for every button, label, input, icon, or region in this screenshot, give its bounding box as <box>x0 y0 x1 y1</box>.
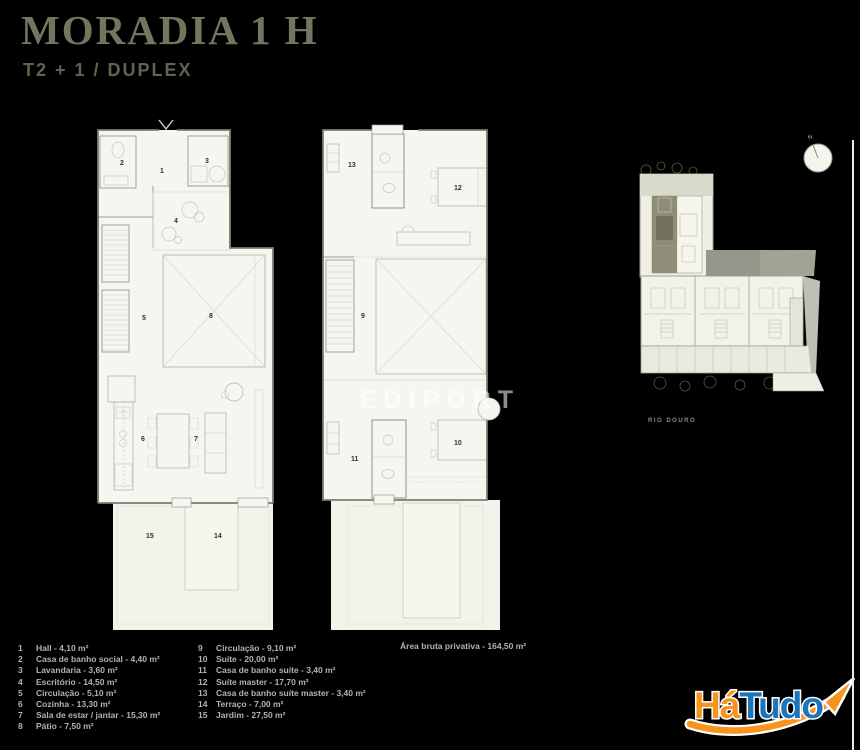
room-number-escritorio: 4 <box>174 218 178 225</box>
room-number-suite: 10 <box>454 440 462 447</box>
room-number-circulacao1: 9 <box>361 313 365 320</box>
logo-text-tudo: Tudo <box>739 685 823 726</box>
legend-item: 3Lavandaria - 3,60 m² <box>18 665 160 676</box>
legend-item: 8Pátio - 7,50 m² <box>18 721 160 732</box>
right-edge-line <box>852 140 854 750</box>
door-threshold <box>238 498 268 507</box>
page-title: MORADIA 1 H <box>21 6 319 54</box>
gross-area-total: Área bruta privativa - 164,50 m² <box>400 641 526 651</box>
legend-item: 2Casa de banho social - 4,40 m² <box>18 654 160 665</box>
ground-floor-plan: 1 2 3 4 5 8 6 7 15 14 <box>95 122 280 632</box>
legend-column-1: 1Hall - 4,10 m² 2Casa de banho social - … <box>18 643 160 733</box>
legend-item: 15Jardim - 27,50 m² <box>198 710 366 721</box>
room-number-cozinha: 6 <box>141 436 145 443</box>
site-plan: N <box>630 128 858 433</box>
hatudo-logo: HáTudo <box>684 674 858 748</box>
door-threshold <box>172 498 191 507</box>
room-number-sala: 7 <box>194 436 198 443</box>
room-number-wc-suite-master: 13 <box>348 162 356 169</box>
site-lower-band <box>641 346 811 373</box>
compass-north-label: N <box>807 134 813 141</box>
logo-text-ha: Há <box>694 685 741 726</box>
floor1-interior <box>323 130 487 500</box>
room-number-patio: 8 <box>209 313 213 320</box>
room-number-circulacao0: 5 <box>142 315 146 322</box>
logo-arrowhead <box>824 678 854 714</box>
legend-item: 9Circulação - 9,10 m² <box>198 643 366 654</box>
room-number-hall: 1 <box>160 168 164 175</box>
skylight <box>372 125 403 134</box>
legend-item: 6Cozinha - 13,30 m² <box>18 699 160 710</box>
room-number-wc-suite: 11 <box>351 456 359 463</box>
floorplan-sheet: MORADIA 1 H T2 + 1 / DUPLEX <box>0 0 860 750</box>
legend-item: 11Casa de banho suíte - 3,40 m² <box>198 665 366 676</box>
watermark: EDIPORT <box>345 386 535 415</box>
legend-item: 13Casa de banho suíte master - 3,40 m² <box>198 688 366 699</box>
terrace-deck <box>185 503 238 590</box>
legend-item: 1Hall - 4,10 m² <box>18 643 160 654</box>
room-number-wc-social: 2 <box>120 160 124 167</box>
door-threshold <box>374 495 394 504</box>
site-main-block <box>641 276 803 346</box>
legend-item: 7Sala de estar / jantar - 15,30 m² <box>18 710 160 721</box>
first-floor-plan: 13 12 9 11 10 <box>318 122 503 632</box>
legend-column-2: 9Circulação - 9,10 m² 10Suíte - 20,00 m²… <box>198 643 366 721</box>
room-number-jardim: 15 <box>146 533 154 540</box>
svg-text:HáTudo: HáTudo <box>694 685 823 726</box>
legend-item: 4Escritório - 14,50 m² <box>18 677 160 688</box>
room-number-terraco: 14 <box>214 533 222 540</box>
site-caption: RIO DOURO <box>648 418 696 424</box>
page-subtitle: T2 + 1 / DUPLEX <box>23 60 193 81</box>
legend-item: 10Suíte - 20,00 m² <box>198 654 366 665</box>
room-number-lavandaria: 3 <box>205 158 209 165</box>
legend-item: 12Suíte master - 17,70 m² <box>198 677 366 688</box>
legend-item: 14Terraço - 7,00 m² <box>198 699 366 710</box>
room-number-suite-master: 12 <box>454 185 462 192</box>
legend-item: 5Circulação - 5,10 m² <box>18 688 160 699</box>
